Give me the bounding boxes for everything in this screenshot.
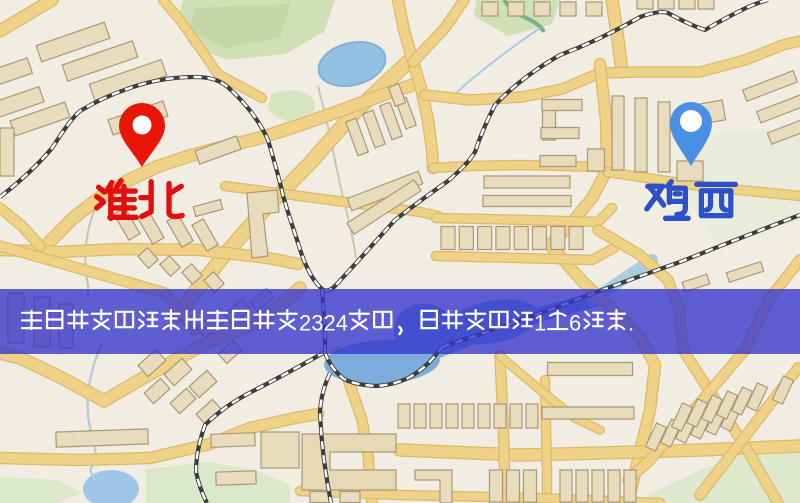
svg-text:2324: 2324	[299, 311, 348, 336]
svg-text:1: 1	[534, 311, 546, 336]
svg-text:.: .	[628, 311, 634, 336]
svg-text:6: 6	[569, 311, 581, 336]
